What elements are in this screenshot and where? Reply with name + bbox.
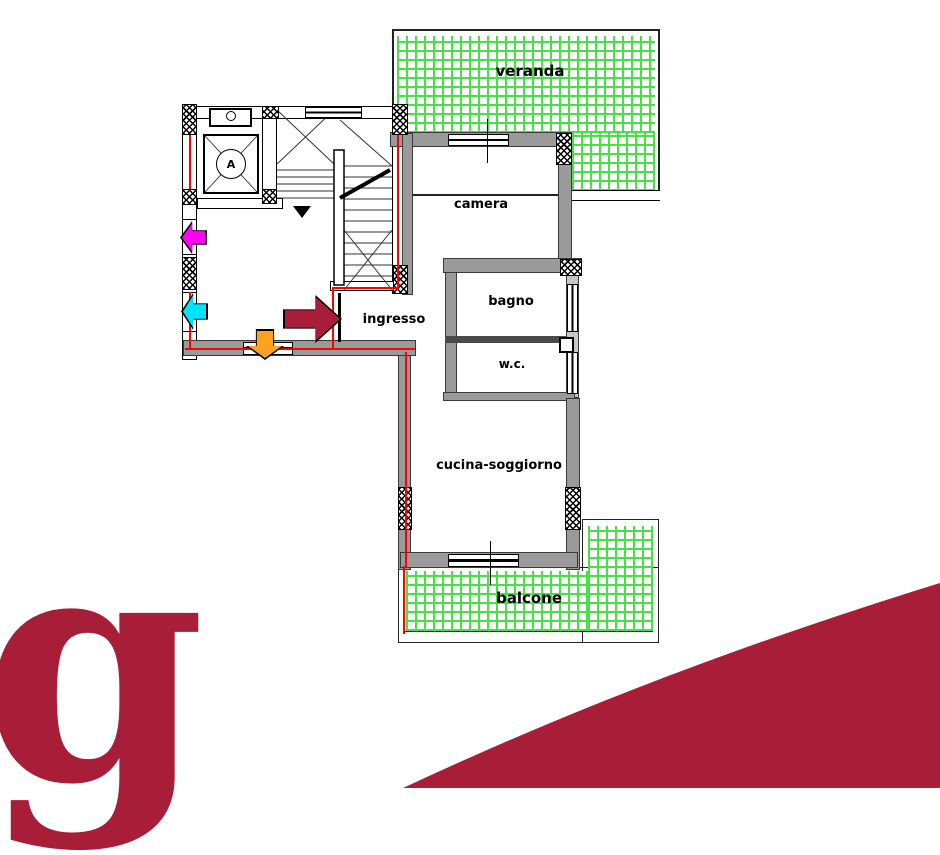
hatch-block <box>182 104 197 135</box>
orange-arrow-icon <box>246 329 284 360</box>
hatch-block <box>182 257 197 290</box>
room-label-bagno: bagno <box>465 294 557 309</box>
entrance-arrow-icon <box>283 295 342 343</box>
veranda-tiles-right-strip <box>572 133 655 191</box>
window-camera <box>448 134 509 146</box>
room-label-camera: camera <box>431 197 531 212</box>
window-center-tick-camera <box>487 119 488 163</box>
cyan-arrow-icon <box>181 293 208 330</box>
floorplan-canvas: A veranda camera bagno <box>0 0 940 788</box>
wall-bagno-left <box>445 272 457 394</box>
apartment-outline <box>397 135 399 287</box>
floorplan-page: { "plan": { "rooms": [ {"id": "veranda",… <box>0 0 940 788</box>
hatch-block <box>556 133 572 165</box>
hatch-block <box>182 189 197 205</box>
stairs-direction-arrow-icon <box>293 206 311 218</box>
apartment-outline <box>332 287 399 289</box>
wall-box <box>559 337 574 353</box>
stairs <box>263 104 409 294</box>
hatch-block <box>565 487 581 530</box>
apartment-outline <box>403 566 405 634</box>
veranda-floor-edge <box>560 190 660 201</box>
hatch-block <box>392 104 408 135</box>
wall-bagno-wc-divider <box>445 336 570 343</box>
window-stairwell <box>305 107 362 118</box>
wall-cucina-right <box>566 398 580 570</box>
room-label-veranda: veranda <box>460 62 600 80</box>
hatch-block <box>393 265 408 294</box>
fixture-circle-icon <box>226 111 236 121</box>
room-label-wc: w.c. <box>467 357 557 371</box>
balcone-inner-edge <box>404 631 653 632</box>
hatch-block <box>262 189 277 204</box>
room-label-balcone: balcone <box>459 589 599 607</box>
hatch-block <box>262 106 279 119</box>
window-cucina <box>448 554 519 567</box>
lift-cabin-label: A <box>216 149 246 179</box>
apartment-outline <box>189 135 191 189</box>
apartment-outline <box>185 348 415 350</box>
hatch-block <box>560 259 582 276</box>
window-center-tick-cucina <box>490 541 491 585</box>
window-bagno <box>567 284 578 332</box>
room-label-ingresso: ingresso <box>344 312 444 327</box>
apartment-outline <box>405 352 407 568</box>
brand-logo-g: g <box>0 508 206 828</box>
lift-letter: A <box>227 158 236 171</box>
veranda-tiles <box>397 36 655 133</box>
balcone-tiles-right <box>588 526 653 631</box>
wall-wc-bottom <box>443 392 575 401</box>
room-label-cucina-soggiorno: cucina-soggiorno <box>419 458 579 473</box>
magenta-arrow-icon <box>180 221 207 254</box>
window-wc <box>567 352 578 394</box>
